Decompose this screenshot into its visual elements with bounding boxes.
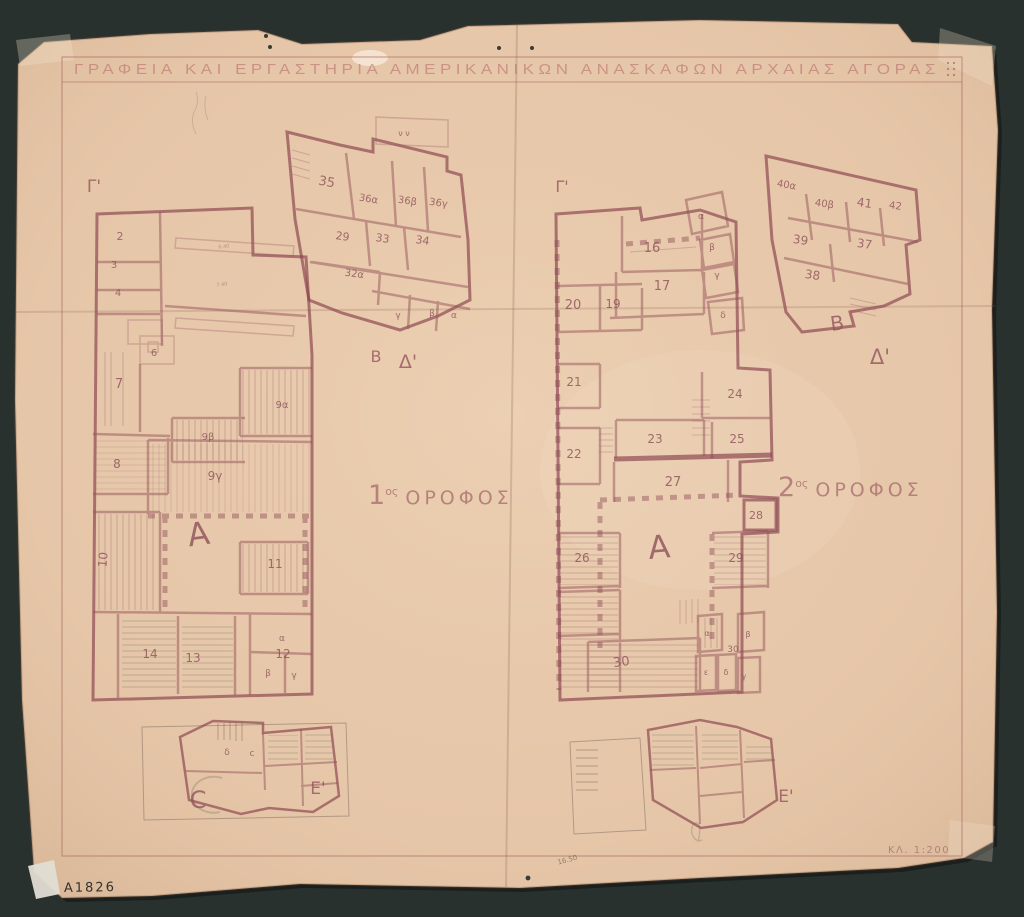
room-label: 22 — [566, 447, 581, 461]
room-label: 28 — [749, 509, 763, 522]
room-label: 26 — [574, 551, 589, 565]
room-label: 19 — [605, 297, 620, 311]
room-label: Α — [646, 527, 671, 567]
room-label: 42 — [888, 200, 902, 213]
room-label: c — [250, 749, 255, 759]
room-label: β — [745, 630, 750, 639]
room-label: β — [265, 669, 271, 679]
room-label: 34 — [415, 233, 431, 248]
room-label: 39 — [792, 232, 809, 248]
drawing-sheet-scan: ΓΡΑΦΕΙΑ ΚΑΙ ΕΡΓΑΣΤΗΡΙΑ ΑΜΕΡΙΚΑΝΙΚΩΝ ΑΝΑΣ… — [0, 0, 1024, 917]
room-label: 9γ — [208, 469, 223, 483]
room-label: γ — [742, 672, 747, 681]
room-label: γ — [291, 671, 297, 681]
room-label: 37 — [856, 236, 873, 252]
room-label: 29 — [728, 551, 743, 565]
room-label: 35 — [317, 174, 336, 192]
room-label: 4 — [115, 288, 121, 299]
room-label: 10 — [95, 551, 110, 567]
catalog-number: A1826 — [64, 880, 116, 896]
room-label: 12 — [275, 647, 290, 661]
room-label: 30 — [727, 645, 739, 655]
room-label: 38 — [804, 267, 821, 283]
section-mark: Ε' — [310, 779, 325, 799]
room-label: ν ν — [398, 129, 410, 138]
room-label: 20 — [565, 298, 582, 313]
section-mark: Δ' — [399, 351, 417, 373]
dimension-label: 6.40 — [218, 243, 230, 250]
room-label: α — [704, 629, 709, 638]
room-label: γ — [395, 311, 401, 321]
room-label: 17 — [654, 279, 671, 294]
room-label: 8 — [113, 457, 121, 471]
room-label: 25 — [729, 432, 744, 446]
dimension-label: 7.40 — [216, 281, 228, 288]
room-label: δ — [224, 748, 230, 758]
room-label: 2 — [117, 230, 124, 243]
room-label: 23 — [647, 432, 662, 446]
room-label: 13 — [185, 651, 200, 665]
room-label: 33 — [375, 231, 391, 246]
room-label: 3 — [111, 260, 117, 271]
punch-hole — [526, 876, 531, 881]
room-label: α — [279, 634, 285, 644]
room-label: α — [451, 311, 457, 321]
room-label: 29 — [335, 229, 351, 244]
room-label: 9α — [276, 400, 289, 411]
room-label: 9β — [202, 432, 215, 443]
room-label: ε — [704, 668, 708, 677]
punch-hole — [264, 34, 268, 38]
room-label: β — [709, 243, 715, 253]
room-label: 21 — [566, 375, 581, 389]
room-label: 14 — [142, 647, 157, 661]
sheet-title: ΓΡΑΦΕΙΑ ΚΑΙ ΕΡΓΑΣΤΗΡΙΑ ΑΜΕΡΙΚΑΝΙΚΩΝ ΑΝΑΣ… — [74, 61, 940, 78]
room-label: 24 — [727, 387, 742, 401]
room-label: δ — [724, 668, 729, 677]
scale-label: ΚΛ. 1:200 — [888, 845, 950, 856]
punch-hole — [497, 46, 501, 50]
section-mark: C — [190, 786, 207, 814]
room-label: δ — [720, 311, 726, 321]
section-mark: Δ' — [870, 345, 890, 369]
section-mark: Γ' — [555, 177, 568, 196]
room-label: β — [429, 309, 435, 319]
room-label: 7 — [115, 377, 123, 392]
section-mark: Ε' — [778, 787, 793, 807]
room-label: γ — [714, 271, 720, 281]
room-label: 27 — [665, 475, 682, 490]
room-label: α — [698, 212, 704, 222]
scanned-drawing-canvas: ΓΡΑΦΕΙΑ ΚΑΙ ΕΡΓΑΣΤΗΡΙΑ ΑΜΕΡΙΚΑΝΙΚΩΝ ΑΝΑΣ… — [0, 0, 1024, 917]
room-label: 6 — [151, 348, 157, 359]
section-mark: Γ' — [87, 177, 101, 197]
punch-hole — [268, 45, 272, 49]
room-label: 11 — [267, 557, 282, 571]
punch-hole — [530, 46, 534, 50]
section-mark: Β — [371, 347, 382, 366]
room-label: 41 — [856, 195, 873, 211]
room-label: 16 — [644, 241, 661, 256]
room-label: 30 — [612, 654, 630, 671]
